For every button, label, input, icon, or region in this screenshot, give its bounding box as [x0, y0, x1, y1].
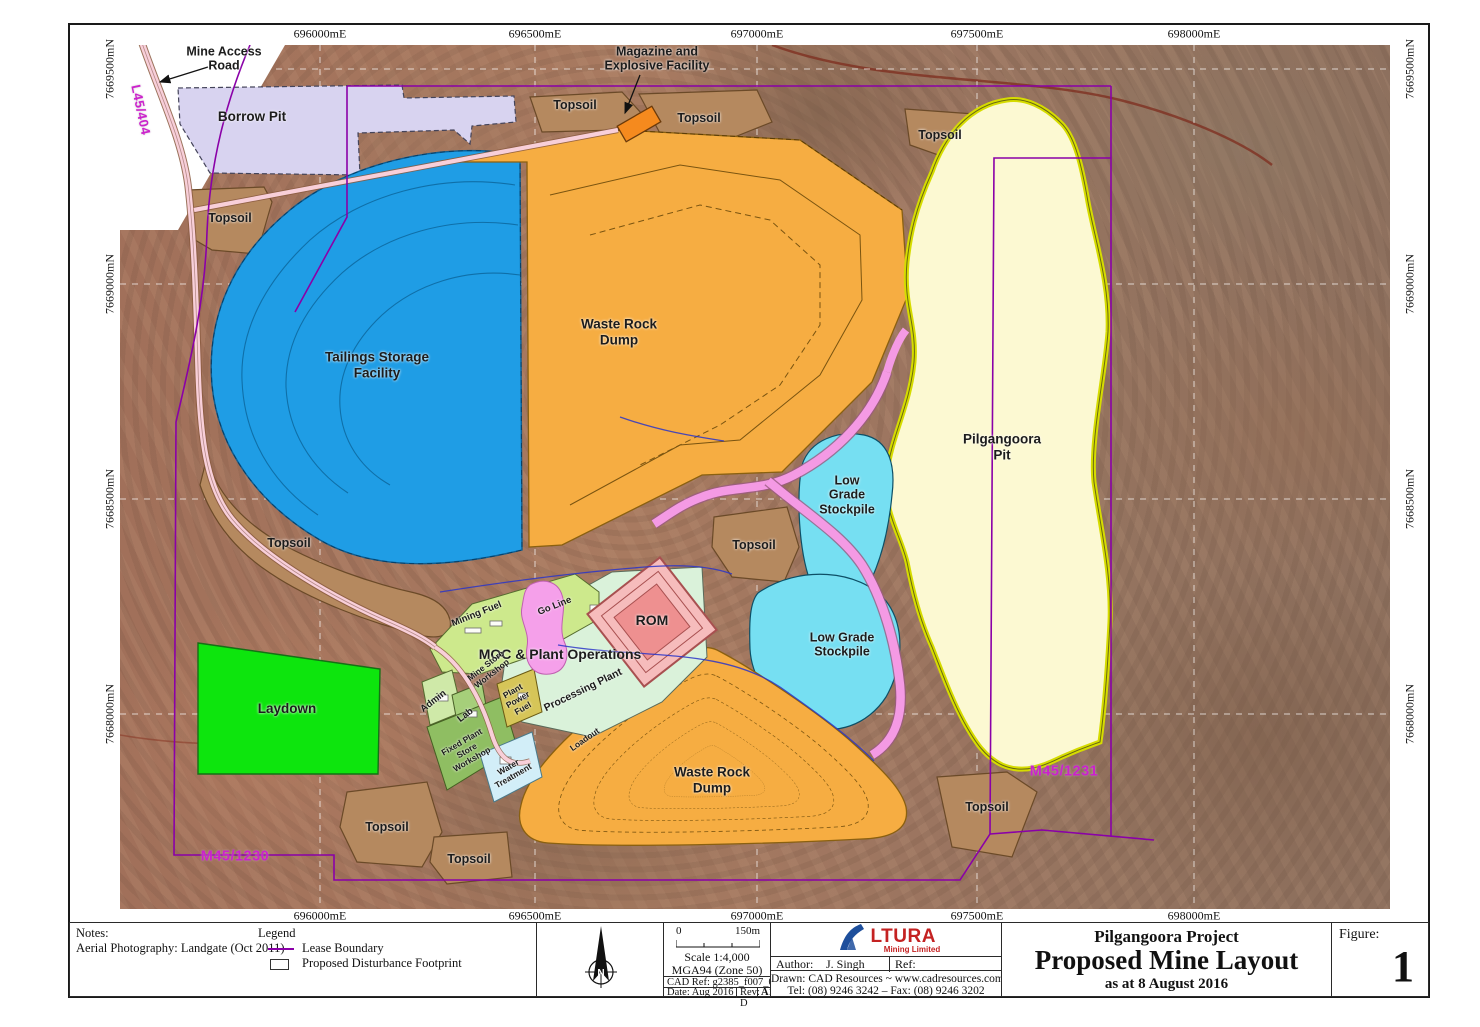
notes-title: Notes:	[76, 926, 109, 941]
company-box: LTURA Mining Limited Author: J. Singh Re…	[770, 922, 1002, 997]
grid-label-right: 7669000mN	[1403, 254, 1418, 314]
title-box: Pilgangoora Project Proposed Mine Layout…	[1001, 922, 1332, 997]
grid-label-left: 7668000mN	[103, 684, 118, 744]
date-text: Date: Aug 2016	[667, 987, 734, 998]
svg-text:N: N	[597, 968, 604, 979]
author-label: Author:	[776, 957, 813, 972]
figure-number: 1	[1392, 941, 1414, 992]
ref-label: Ref:	[889, 957, 916, 972]
legend-footprint-label: Proposed Disturbance Footprint	[302, 956, 462, 971]
drawing-sheet: Mine Access Road Magazine and Explosive …	[68, 23, 1430, 998]
tel-text: Tel: (08) 9246 3242 – Fax: (08) 9246 320…	[771, 985, 1001, 997]
grid-label-top: 697000mE	[731, 27, 784, 42]
company-logo: LTURA Mining Limited	[771, 923, 1001, 957]
notes-body: Aerial Photography: Landgate (Oct 2011)	[76, 941, 285, 956]
map-vector-layer	[120, 45, 1390, 909]
scale-max: 150m	[735, 925, 760, 937]
grid-label-right: 7668000mN	[1403, 684, 1418, 744]
grid-label-top: 696500mE	[509, 27, 562, 42]
grid-label-top: 698000mE	[1168, 27, 1221, 42]
drawing-subtitle: as at 8 August 2016	[1002, 976, 1331, 993]
north-arrow-box: N	[536, 922, 664, 997]
grid-label-top: 697500mE	[951, 27, 1004, 42]
drawn-text: Drawn: CAD Resources ~ www.cadresources.…	[771, 973, 1001, 985]
legend-lease-label: Lease Boundary	[302, 941, 384, 956]
north-arrow-icon: N	[579, 925, 623, 995]
scale-box: 0 150m Scale 1:4,000 MGA94 (Zone 50) CAD…	[663, 922, 771, 997]
scale-zero: 0	[676, 925, 682, 937]
laydown-area	[198, 643, 380, 774]
grid-label-right: 7668500mN	[1403, 469, 1418, 529]
grid-label-left: 7668500mN	[103, 469, 118, 529]
footprint-swatch	[270, 959, 289, 970]
notes-legend-box: Notes: Aerial Photography: Landgate (Oct…	[69, 922, 537, 997]
grid-label-left: 7669500mN	[103, 39, 118, 99]
drawing-title: Proposed Mine Layout	[1002, 945, 1331, 976]
lease-boundary-swatch	[268, 948, 294, 950]
grid-label-top: 696000mE	[294, 27, 347, 42]
logo-text: LTURA	[870, 926, 935, 947]
author-value: J. Singh	[826, 957, 865, 972]
pilgangoora-pit-area	[886, 99, 1110, 769]
legend-title: Legend	[258, 926, 295, 941]
grid-label-left: 7669000mN	[103, 254, 118, 314]
figure-box: Figure: 1	[1331, 922, 1429, 997]
project-name: Pilgangoora Project	[1002, 927, 1331, 947]
aerial-photo	[120, 45, 1390, 909]
grid-label-right: 7669500mN	[1403, 39, 1418, 99]
scale-bar	[676, 938, 760, 948]
altura-logo-icon	[836, 923, 866, 951]
figure-label: Figure:	[1339, 927, 1379, 943]
